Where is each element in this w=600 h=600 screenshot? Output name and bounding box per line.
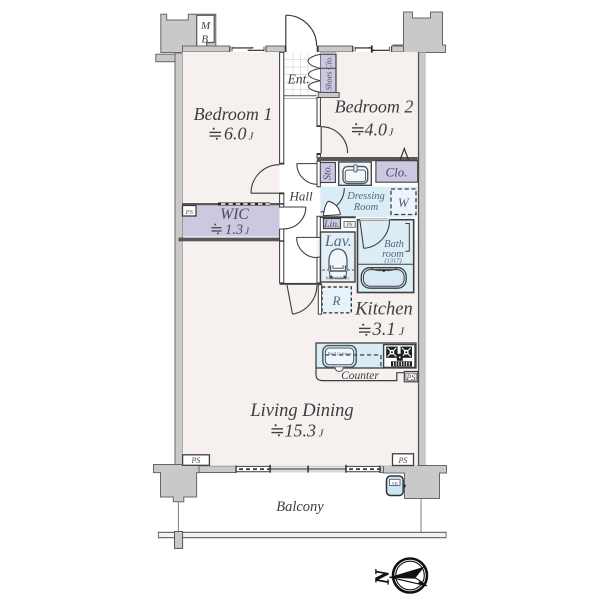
svg-text:Ent.: Ent. — [287, 72, 310, 87]
svg-text:Lav.: Lav. — [324, 233, 352, 250]
svg-text:Counter: Counter — [341, 370, 379, 382]
svg-text:3.1: 3.1 — [372, 320, 396, 340]
svg-text:Sto.: Sto. — [323, 165, 334, 180]
svg-text:PS: PS — [185, 209, 194, 216]
svg-text:6.0: 6.0 — [224, 123, 247, 143]
svg-text:PS: PS — [191, 456, 201, 465]
svg-text:N: N — [371, 568, 393, 585]
svg-text:Wall Cabinet: Wall Cabinet — [325, 276, 350, 281]
svg-text:W: W — [398, 195, 410, 210]
svg-text:M: M — [200, 20, 211, 32]
svg-text:Bedroom 1: Bedroom 1 — [194, 104, 273, 124]
svg-text:J: J — [399, 326, 405, 338]
svg-text:Room: Room — [353, 202, 379, 213]
svg-text:PS: PS — [398, 456, 408, 465]
svg-text:SK: SK — [392, 482, 399, 488]
svg-text:Lin.: Lin. — [323, 220, 339, 230]
svg-text:Clo.: Clo. — [385, 165, 407, 180]
svg-text:Hall: Hall — [288, 188, 313, 203]
svg-text:1.3: 1.3 — [225, 222, 243, 238]
svg-text:Living Dining: Living Dining — [249, 401, 353, 421]
svg-text:PS: PS — [406, 373, 416, 382]
svg-text:Kitchen: Kitchen — [354, 300, 413, 320]
svg-text:Balcony: Balcony — [276, 499, 324, 515]
svg-text:B: B — [201, 33, 208, 45]
svg-text:4.0: 4.0 — [365, 119, 388, 139]
svg-text:Bedroom 2: Bedroom 2 — [335, 97, 414, 117]
svg-text:WIC: WIC — [220, 206, 249, 223]
svg-text:Shoes Clo.: Shoes Clo. — [324, 56, 333, 90]
svg-text:R: R — [332, 293, 341, 308]
svg-text:PS: PS — [346, 223, 353, 228]
svg-text:(1317): (1317) — [384, 258, 401, 265]
svg-text:15.3: 15.3 — [285, 420, 317, 440]
svg-text:Dressing: Dressing — [346, 191, 385, 202]
